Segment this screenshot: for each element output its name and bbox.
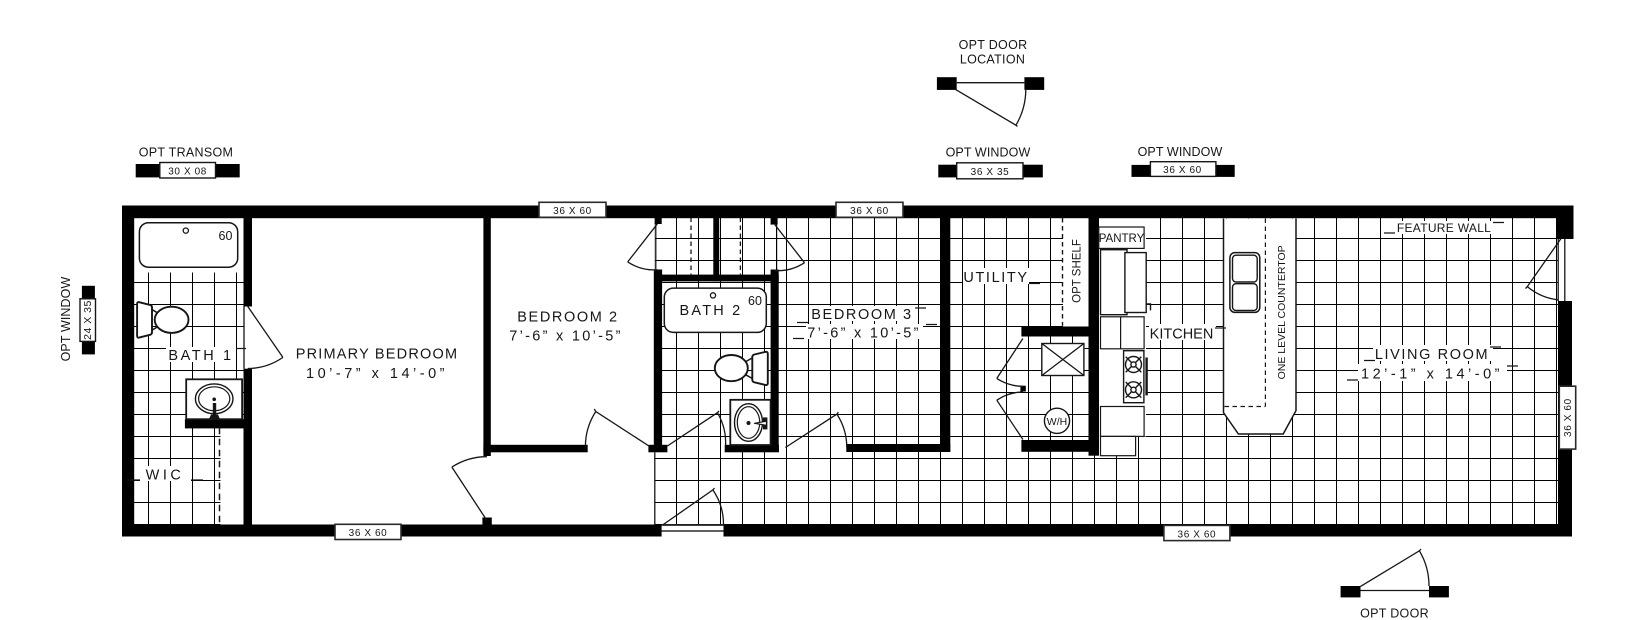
svg-text:LIVING ROOM: LIVING ROOM: [1375, 347, 1489, 363]
svg-text:OPT WINDOW: OPT WINDOW: [59, 277, 73, 362]
svg-text:UTILITY: UTILITY: [963, 270, 1028, 286]
svg-text:FEATURE WALL: FEATURE WALL: [1397, 221, 1491, 235]
svg-text:OPT DOOR: OPT DOOR: [959, 38, 1028, 52]
svg-text:36 X 60: 36 X 60: [1178, 529, 1217, 540]
svg-text:36 X 35: 36 X 35: [971, 167, 1010, 178]
svg-text:36 X 60: 36 X 60: [553, 206, 592, 217]
svg-text:7’-6” x 10’-5”: 7’-6” x 10’-5”: [509, 329, 623, 345]
svg-text:ONE LEVEL COUNTERTOP: ONE LEVEL COUNTERTOP: [1276, 245, 1288, 379]
svg-text:BATH 2: BATH 2: [680, 303, 743, 319]
svg-text:36 X 60: 36 X 60: [1163, 165, 1202, 176]
svg-text:30 X 08: 30 X 08: [168, 167, 207, 178]
svg-text:10’-7” x 14’-0”: 10’-7” x 14’-0”: [306, 366, 448, 382]
svg-text:PANTRY: PANTRY: [1099, 233, 1145, 245]
svg-text:36 X 60: 36 X 60: [1563, 398, 1574, 437]
svg-text:PRIMARY BEDROOM: PRIMARY BEDROOM: [296, 347, 459, 363]
svg-text:24 X 35: 24 X 35: [82, 300, 94, 340]
svg-text:LOCATION: LOCATION: [960, 53, 1025, 67]
svg-text:W/H: W/H: [1047, 416, 1067, 428]
svg-text:BEDROOM 3: BEDROOM 3: [811, 307, 912, 323]
svg-text:KITCHEN: KITCHEN: [1150, 327, 1214, 343]
svg-text:BEDROOM 2: BEDROOM 2: [517, 310, 618, 326]
svg-text:7’-6” x 10’-5”: 7’-6” x 10’-5”: [807, 326, 921, 342]
svg-text:OPT WINDOW: OPT WINDOW: [946, 146, 1031, 160]
svg-text:OPT DOOR: OPT DOOR: [1360, 607, 1429, 620]
svg-text:OPT TRANSOM: OPT TRANSOM: [139, 146, 234, 160]
svg-text:OPT WINDOW: OPT WINDOW: [1138, 145, 1223, 159]
svg-text:12’-1” x 14’-0”: 12’-1” x 14’-0”: [1361, 367, 1503, 383]
svg-text:BATH 1: BATH 1: [168, 348, 233, 364]
svg-text:60: 60: [748, 294, 762, 308]
svg-text:36 X 60: 36 X 60: [349, 528, 388, 539]
svg-text:60: 60: [219, 229, 233, 243]
svg-text:WIC: WIC: [146, 468, 185, 484]
svg-text:OPT SHELF: OPT SHELF: [1072, 239, 1084, 303]
svg-text:36 X 60: 36 X 60: [850, 206, 889, 217]
